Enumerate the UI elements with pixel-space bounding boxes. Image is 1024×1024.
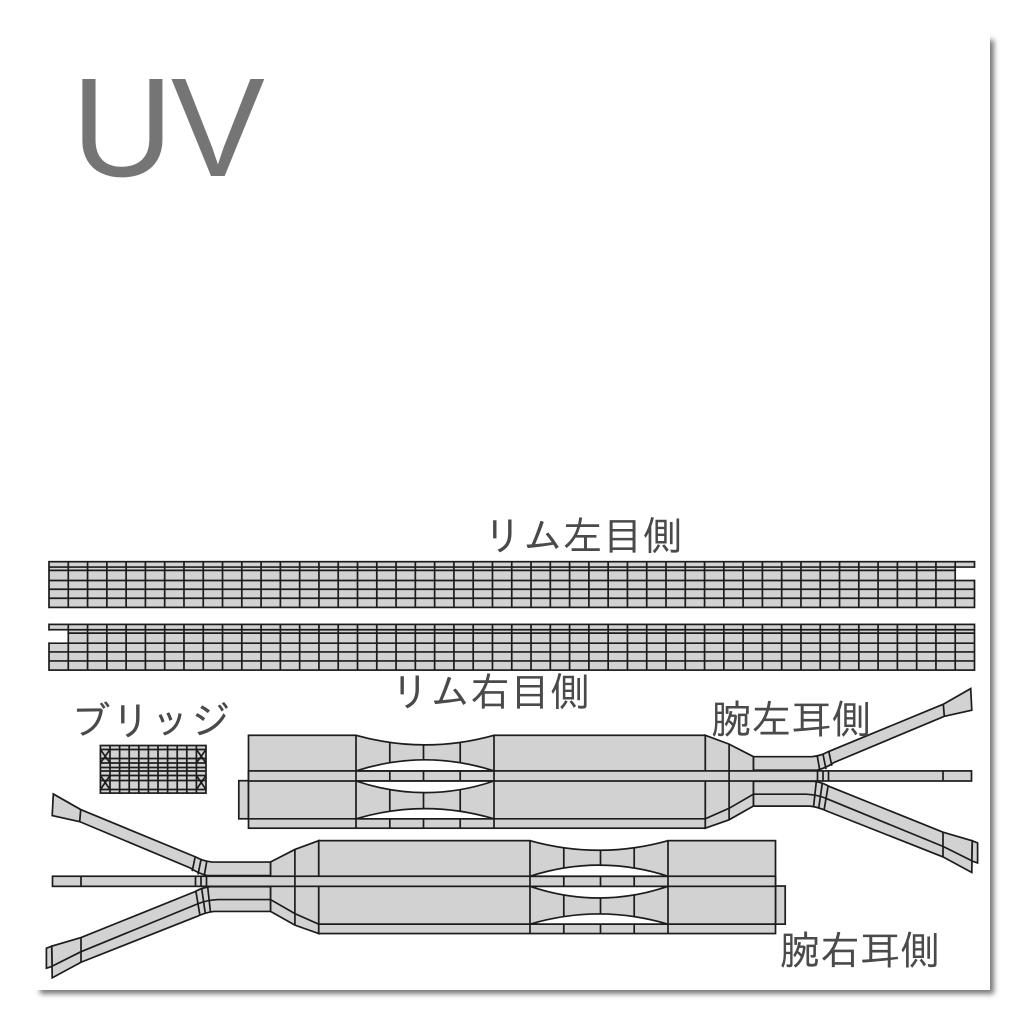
svg-text:UV: UV: [72, 48, 265, 206]
